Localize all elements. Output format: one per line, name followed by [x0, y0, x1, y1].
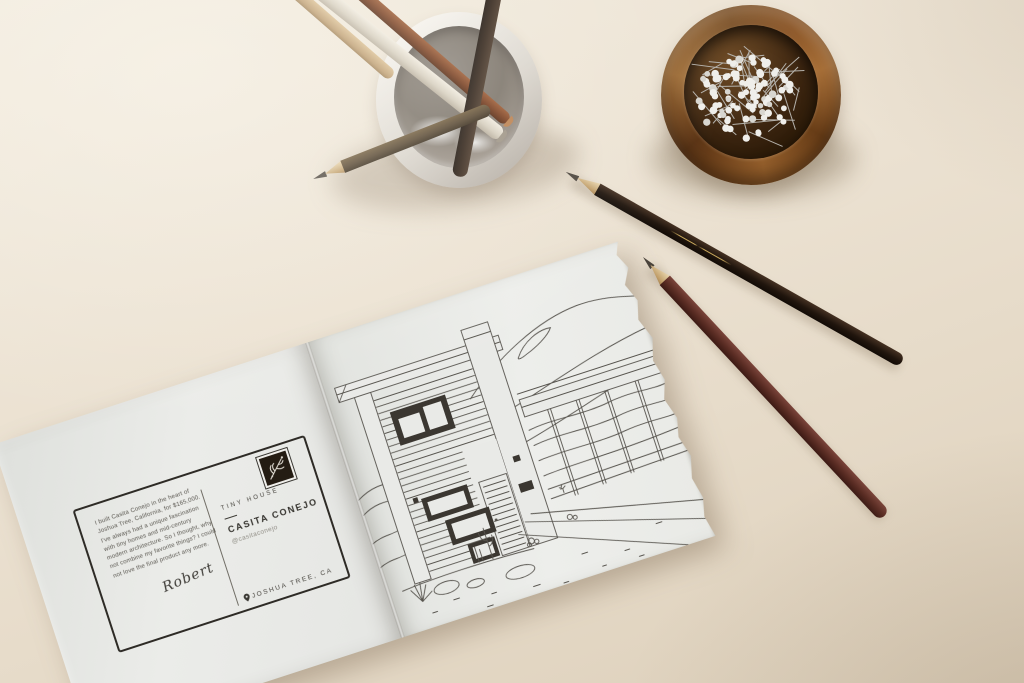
postcard: I built Casita Conejo in the heart of Jo…	[72, 435, 350, 653]
pin-bowl-cavity	[684, 25, 818, 159]
pencil-lead-tip	[564, 169, 579, 181]
postcard-signature: Robert	[160, 560, 216, 596]
stamp-botanical-sprig-icon	[259, 451, 294, 486]
postcard-location: JOSHUA TREE, CA	[243, 566, 334, 602]
photo-scene: I built Casita Conejo in the heart of Jo…	[0, 0, 1024, 683]
postcard-dash	[224, 515, 237, 520]
location-pin-icon	[243, 593, 251, 602]
stamp-art	[259, 451, 294, 486]
coloring-book: I built Casita Conejo in the heart of Jo…	[0, 241, 717, 683]
pin-bowl	[661, 5, 841, 185]
postcard-location-text: JOSHUA TREE, CA	[251, 567, 334, 600]
pins-pile	[684, 25, 818, 159]
